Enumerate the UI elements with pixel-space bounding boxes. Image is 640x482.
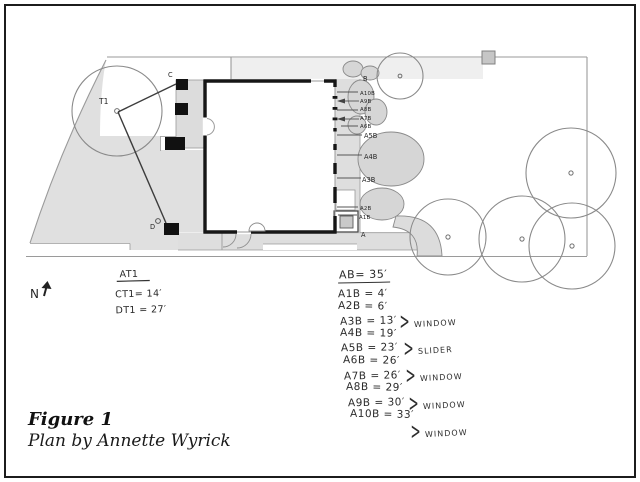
brace-icon: > [411, 418, 421, 445]
legend-annotation-window-2: >WINDOW [406, 365, 463, 384]
label-d: D [150, 223, 155, 231]
legend-annotation-slider: >SLIDER [404, 338, 453, 357]
figure-caption: Figure 1 Plan by Annette Wyrick [28, 408, 231, 452]
label-a7b: A7B [360, 116, 372, 122]
brace-icon: > [406, 362, 416, 389]
north-indicator: N [30, 281, 52, 301]
label-a: A [361, 231, 366, 239]
label-a3b: A3B [362, 176, 376, 184]
label-b: B [363, 75, 368, 83]
legend-annotation-window-1: >WINDOW [400, 311, 457, 330]
north-label: N [30, 287, 39, 301]
label-a5b: A5B [364, 132, 378, 140]
figure-title: Figure 1 [28, 408, 231, 431]
label-a4b: A4B [364, 153, 378, 161]
legend-annotation-window-4: >WINDOW [411, 421, 468, 440]
label-t1: T1 [98, 97, 109, 106]
label-a9b: A9B [360, 99, 372, 105]
brace-icon: > [404, 335, 414, 362]
tree-measurement-block: AT1 CT1= 14′ DT1 = 27′ [114, 268, 166, 316]
post-d [164, 223, 179, 235]
dt1-measure: DT1 = 27′ [115, 304, 166, 316]
label-a2b: A2B [360, 206, 372, 212]
label-c: C [168, 71, 173, 79]
brace-icon: > [409, 390, 419, 417]
label-a6b: A6B [360, 124, 372, 130]
label-a10b: A10B [360, 91, 375, 97]
label-a8b: A8B [360, 107, 372, 113]
at1-title: AT1 [119, 269, 138, 280]
south-walkway [178, 233, 435, 251]
north-arrow-icon [42, 281, 52, 289]
legend-header: AB= 35′ [338, 268, 391, 284]
measurement-legend: AB= 35′ A1B = 4′ A2B = 6′ A3B = 13′ A4B … [338, 263, 488, 423]
utility-marker [482, 51, 495, 64]
ct1-measure: CT1= 14′ [115, 288, 162, 300]
label-a1b: A1B [359, 215, 371, 221]
brace-icon: > [400, 308, 410, 335]
planter-marker-inner [340, 216, 353, 228]
post-c [176, 79, 188, 90]
legend-rows: A1B = 4′ A2B = 6′ A3B = 13′ A4B = 19′ A5… [338, 287, 488, 423]
figure-subtitle: Plan by Annette Wyrick [28, 431, 231, 452]
legend-annotation-window-3: >WINDOW [409, 393, 466, 412]
